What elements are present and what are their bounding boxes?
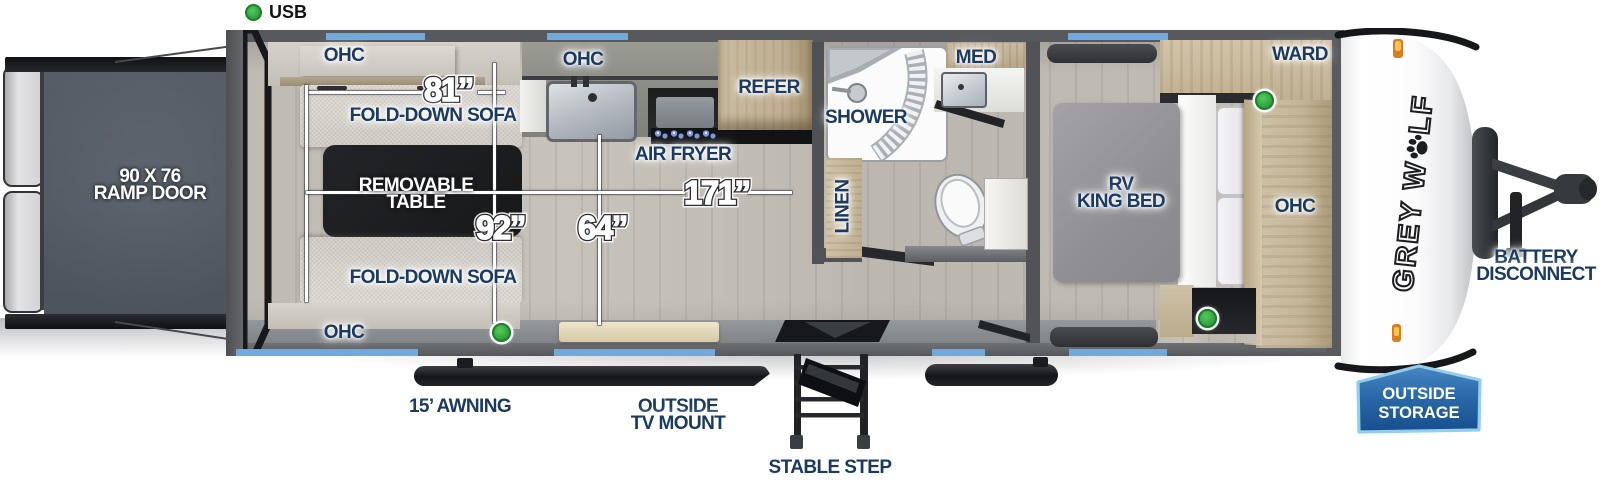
svg-text:OUTSIDE: OUTSIDE bbox=[1382, 385, 1455, 403]
svg-text:STORAGE: STORAGE bbox=[1378, 404, 1459, 422]
